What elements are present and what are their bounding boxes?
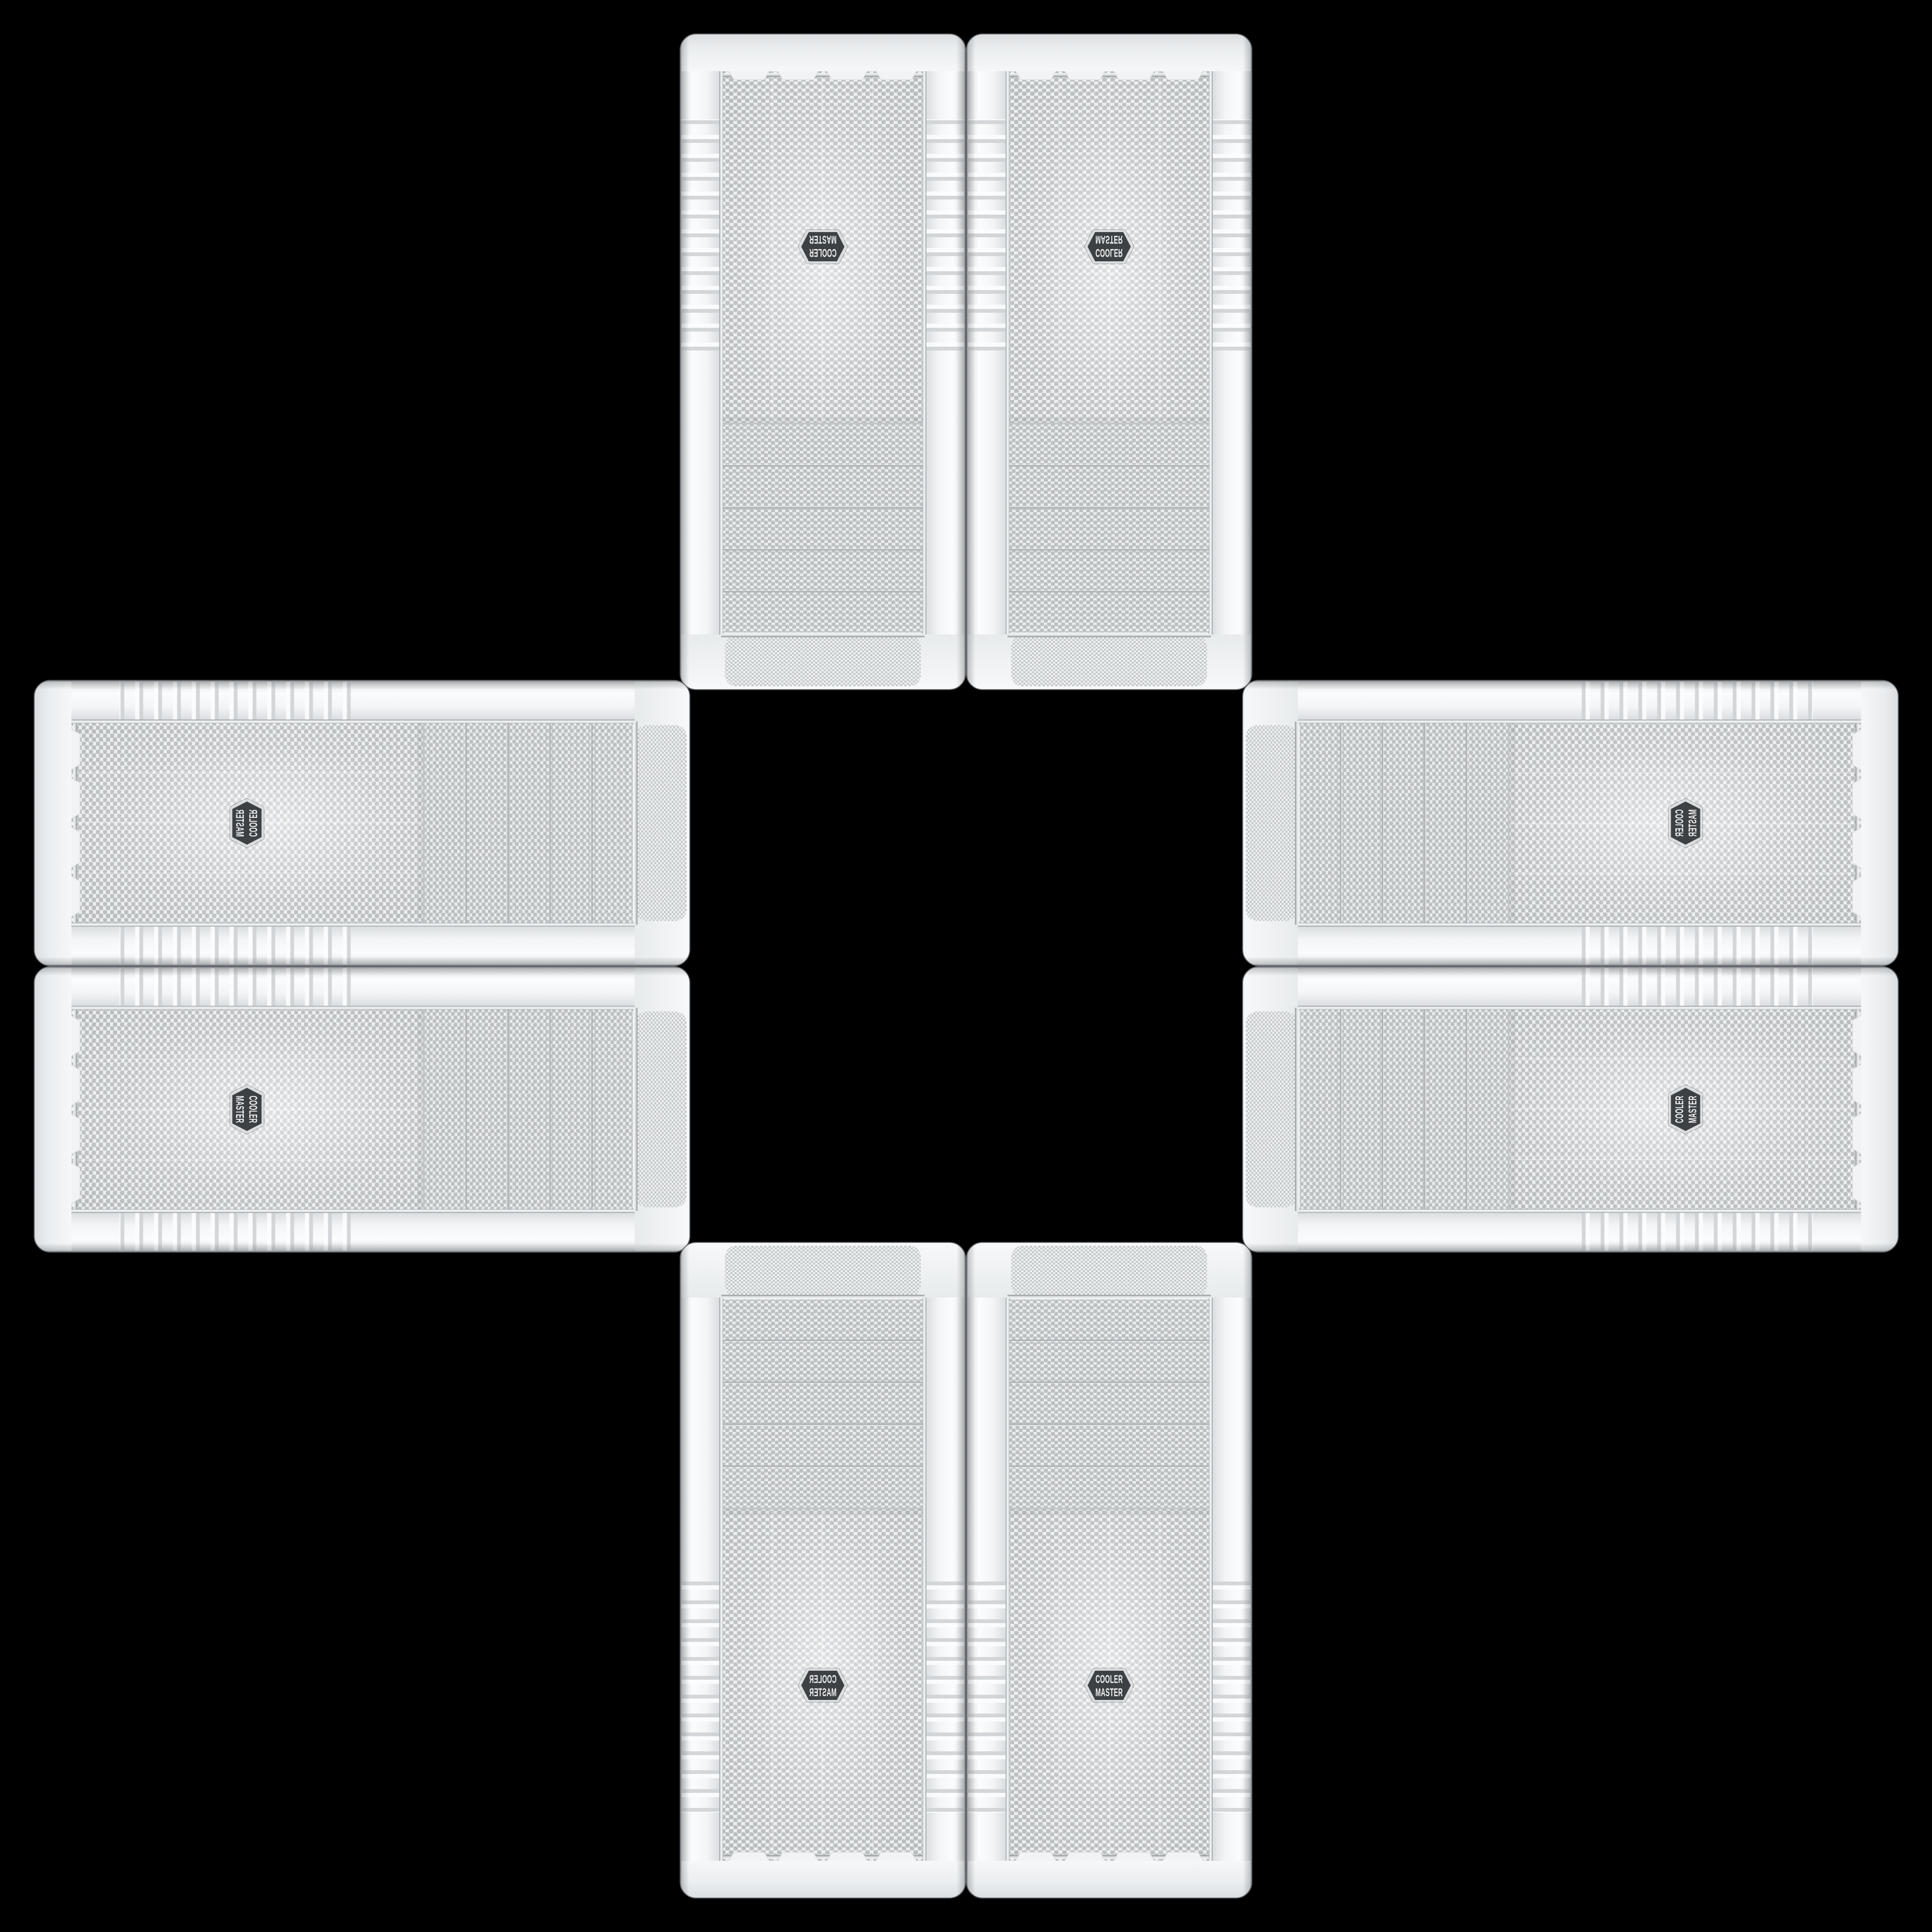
case-front-art	[680, 1242, 966, 1899]
pc-case-top-left	[680, 33, 966, 690]
pc-case-bottom-right	[966, 1242, 1252, 1899]
pc-case-left-top	[33, 680, 690, 966]
case-front-art	[33, 966, 690, 1252]
case-front-art	[680, 33, 966, 690]
case-front-art	[33, 680, 690, 966]
pc-case-top-right	[966, 33, 1252, 690]
case-front-art	[1242, 680, 1899, 966]
case-collage	[0, 0, 1932, 1932]
pc-case-right-top	[1242, 680, 1899, 966]
pc-case-right-bottom	[1242, 966, 1899, 1252]
pc-case-left-bottom	[33, 966, 690, 1252]
case-front-art	[1242, 966, 1899, 1252]
pc-case-bottom-left	[680, 1242, 966, 1899]
case-front-art	[966, 33, 1252, 690]
case-front-art	[966, 1242, 1252, 1899]
